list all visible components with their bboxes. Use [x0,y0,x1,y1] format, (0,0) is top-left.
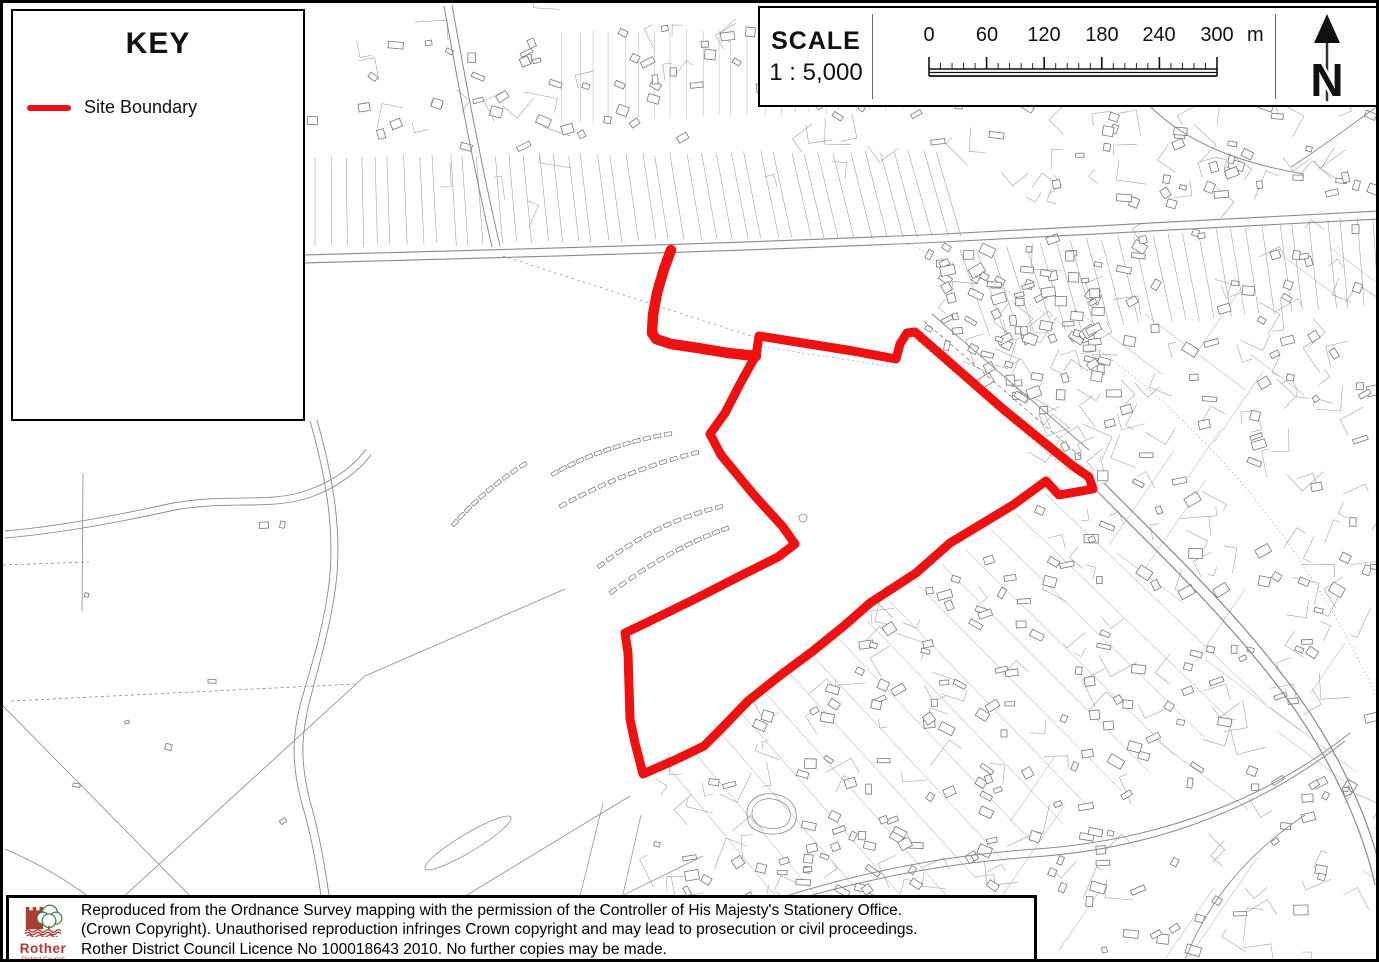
north-arrow-head [1314,14,1340,43]
copyright-text: Reproduced from the Ordnance Survey mapp… [81,901,918,956]
scale-panel: SCALE 1 : 5,000 0 60 120 180 240 300 m N [758,6,1379,107]
copyright-line-1: Reproduced from the Ordnance Survey mapp… [81,901,918,920]
map-sheet: KEY Site Boundary SCALE 1 : 5,000 0 60 1… [0,0,1379,962]
scale-tick-60: 60 [976,24,998,47]
scale-ruler [923,56,1223,80]
key-panel: KEY Site Boundary [11,9,305,421]
scale-tick-240: 240 [1142,24,1175,47]
scale-tick-120: 120 [1027,24,1060,47]
rother-logo-graphic [20,901,66,937]
north-arrow-graphic: N [1277,10,1377,105]
copyright-line-2: (Crown Copyright). Unauthorised reproduc… [81,920,918,939]
site-boundary-label: Site Boundary [84,97,197,118]
key-title: KEY [13,27,303,61]
scale-title: SCALE [771,27,861,56]
credit-panel: Rother District Council Reproduced from … [6,895,1037,962]
logo-subtitle: District Council [17,956,69,962]
scale-text: SCALE 1 : 5,000 [760,8,872,105]
legend-row-site-boundary: Site Boundary [27,97,303,118]
north-label: N [1310,54,1343,105]
site-boundary-access-spur [652,250,756,356]
site-boundary-swatch [27,105,71,111]
waves-icon [25,930,61,937]
scale-unit: m [1247,24,1264,47]
rother-logo: Rother District Council [17,901,69,956]
scale-bar: 0 60 120 180 240 300 m [873,8,1275,105]
scale-tick-180: 180 [1085,24,1118,47]
logo-title: Rother [17,942,69,956]
copyright-line-3: Rother District Council Licence No 10001… [81,940,918,959]
scale-tick-300: 300 [1200,24,1233,47]
scale-ratio: 1 : 5,000 [769,59,862,87]
north-arrow: N [1276,8,1377,105]
scale-tick-0: 0 [923,24,934,47]
